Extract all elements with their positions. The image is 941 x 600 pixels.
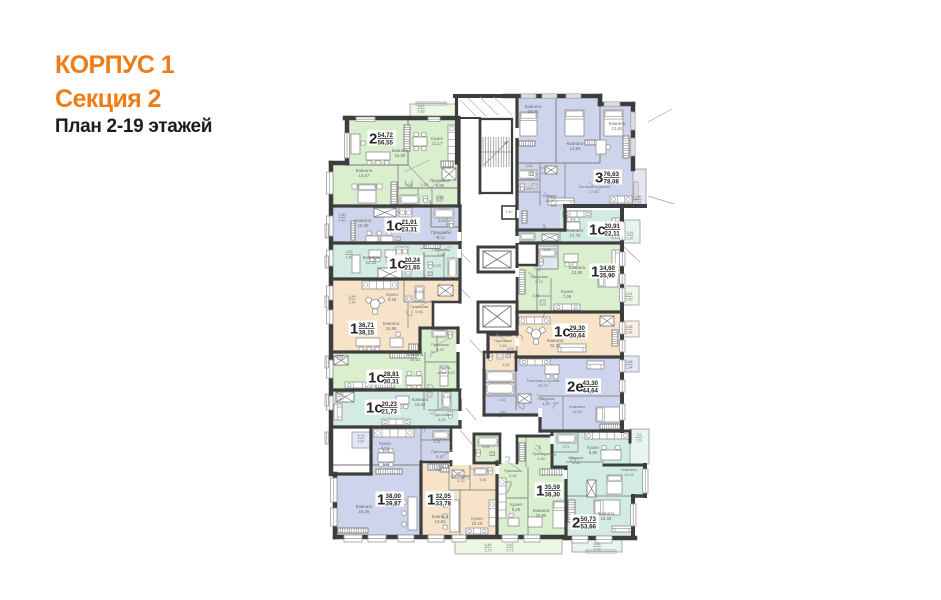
svg-text:44,64: 44,64 xyxy=(583,388,599,395)
svg-text:50,73: 50,73 xyxy=(581,516,597,523)
svg-text:13,95: 13,95 xyxy=(572,270,583,275)
svg-text:76,63: 76,63 xyxy=(604,171,620,178)
svg-text:3,61: 3,61 xyxy=(482,445,489,449)
svg-text:21,73: 21,73 xyxy=(382,409,398,416)
svg-text:Прихожая: Прихожая xyxy=(532,452,550,456)
svg-text:15,95: 15,95 xyxy=(536,513,547,518)
svg-text:2: 2 xyxy=(369,131,377,148)
svg-text:17,70: 17,70 xyxy=(570,233,581,238)
svg-text:3,74: 3,74 xyxy=(358,434,365,438)
svg-text:3: 3 xyxy=(595,170,603,187)
svg-text:8,95: 8,95 xyxy=(589,450,598,455)
svg-text:1,40: 1,40 xyxy=(346,256,353,260)
svg-text:38,15: 38,15 xyxy=(359,330,375,337)
svg-text:1,45: 1,45 xyxy=(635,201,642,205)
svg-text:20,23: 20,23 xyxy=(382,401,398,408)
svg-text:15,50: 15,50 xyxy=(358,223,369,228)
svg-text:2,6: 2,6 xyxy=(637,433,642,437)
svg-text:Прихожая: Прихожая xyxy=(431,450,449,454)
svg-text:4,30: 4,30 xyxy=(436,348,443,352)
svg-text:7,69: 7,69 xyxy=(563,294,572,299)
svg-text:3,81: 3,81 xyxy=(479,478,486,482)
svg-text:2е: 2е xyxy=(567,379,584,396)
svg-text:21,91: 21,91 xyxy=(402,219,418,226)
svg-text:15,68: 15,68 xyxy=(601,516,612,521)
svg-text:Прихожая: Прихожая xyxy=(537,397,554,401)
svg-text:5,77: 5,77 xyxy=(436,455,443,459)
svg-text:12,53: 12,53 xyxy=(572,409,582,414)
svg-text:1,83: 1,83 xyxy=(418,110,425,114)
svg-text:3,67: 3,67 xyxy=(418,104,425,108)
svg-text:1,34: 1,34 xyxy=(626,331,633,335)
svg-text:2,82: 2,82 xyxy=(499,344,506,348)
svg-text:9,54: 9,54 xyxy=(381,446,390,451)
svg-text:1,44: 1,44 xyxy=(349,301,356,305)
svg-text:1,51: 1,51 xyxy=(550,453,557,457)
svg-text:14,50: 14,50 xyxy=(570,146,581,151)
svg-text:30,31: 30,31 xyxy=(384,379,400,386)
svg-text:5,63: 5,63 xyxy=(415,290,422,294)
svg-text:1,52: 1,52 xyxy=(420,183,427,187)
svg-text:1,20: 1,20 xyxy=(627,237,634,241)
svg-text:3,00: 3,00 xyxy=(337,351,344,355)
svg-text:4,32: 4,32 xyxy=(499,398,506,402)
svg-text:4,33: 4,33 xyxy=(503,363,510,367)
svg-text:15,62: 15,62 xyxy=(415,402,426,407)
svg-text:2,45: 2,45 xyxy=(627,231,634,235)
svg-text:6,63: 6,63 xyxy=(572,461,579,465)
svg-text:1с: 1с xyxy=(386,218,403,235)
svg-text:10,19: 10,19 xyxy=(472,521,483,526)
svg-text:9,25: 9,25 xyxy=(512,507,521,512)
svg-text:1с: 1с xyxy=(554,324,571,341)
svg-text:6,85: 6,85 xyxy=(436,183,445,188)
svg-text:4,17: 4,17 xyxy=(437,328,444,332)
svg-text:ниша 4,32: ниша 4,32 xyxy=(437,371,454,375)
svg-text:1: 1 xyxy=(377,492,385,509)
svg-text:33,78: 33,78 xyxy=(436,501,452,508)
svg-text:29,30: 29,30 xyxy=(570,325,586,332)
svg-text:34,60: 34,60 xyxy=(600,265,616,272)
svg-text:38,30: 38,30 xyxy=(545,492,561,499)
svg-text:2,80: 2,80 xyxy=(635,195,642,199)
svg-text:35,59: 35,59 xyxy=(545,484,561,491)
svg-text:5,53: 5,53 xyxy=(433,264,440,268)
svg-text:5,42: 5,42 xyxy=(507,543,514,547)
svg-text:5,46: 5,46 xyxy=(594,542,601,546)
svg-text:30,64: 30,64 xyxy=(570,333,586,340)
svg-text:Прихожая: Прихожая xyxy=(530,275,548,279)
svg-text:3,94: 3,94 xyxy=(537,457,544,461)
svg-text:1,50: 1,50 xyxy=(626,298,633,302)
svg-text:2,89: 2,89 xyxy=(349,295,356,299)
svg-text:1: 1 xyxy=(427,492,435,509)
svg-text:4,45: 4,45 xyxy=(542,402,549,406)
svg-text:6,80: 6,80 xyxy=(509,474,516,478)
svg-text:11,53: 11,53 xyxy=(624,472,633,477)
svg-text:1с: 1с xyxy=(389,256,406,273)
svg-text:20,24: 20,24 xyxy=(405,257,421,264)
svg-text:Коридор: Коридор xyxy=(569,456,584,460)
svg-text:1с: 1с xyxy=(589,222,606,239)
svg-text:2,68: 2,68 xyxy=(626,360,633,364)
svg-text:20,91: 20,91 xyxy=(605,223,621,230)
svg-text:56,55: 56,55 xyxy=(378,140,394,147)
svg-text:78,08: 78,08 xyxy=(604,179,620,186)
svg-text:14,12: 14,12 xyxy=(366,260,377,265)
svg-text:1,40: 1,40 xyxy=(506,210,513,214)
svg-text:18,48: 18,48 xyxy=(359,509,370,514)
svg-text:5,13: 5,13 xyxy=(535,280,542,284)
svg-text:43,30: 43,30 xyxy=(583,380,599,387)
svg-text:54,72: 54,72 xyxy=(378,132,394,139)
svg-text:1,20: 1,20 xyxy=(636,439,643,443)
svg-text:3,53: 3,53 xyxy=(526,164,533,168)
svg-text:2,61: 2,61 xyxy=(626,292,633,296)
svg-text:23,31: 23,31 xyxy=(402,227,418,234)
svg-text:17,60: 17,60 xyxy=(589,190,598,194)
svg-text:16,88: 16,88 xyxy=(386,326,397,331)
svg-text:4,22: 4,22 xyxy=(457,479,464,483)
svg-text:22,15: 22,15 xyxy=(550,343,561,348)
svg-text:2,83: 2,83 xyxy=(346,250,353,254)
svg-text:11,17: 11,17 xyxy=(432,141,443,146)
svg-text:5,21: 5,21 xyxy=(438,418,445,422)
svg-text:Прихожая: Прихожая xyxy=(452,474,470,478)
svg-text:2,68: 2,68 xyxy=(626,325,633,329)
svg-text:5,53: 5,53 xyxy=(405,183,412,187)
svg-text:1,73: 1,73 xyxy=(594,548,601,552)
svg-text:Кухня-: Кухня- xyxy=(440,366,452,370)
svg-text:15,70: 15,70 xyxy=(528,109,539,114)
svg-text:36,71: 36,71 xyxy=(359,322,375,329)
svg-text:1,34: 1,34 xyxy=(626,366,633,370)
svg-text:Прихожая: Прихожая xyxy=(504,469,522,473)
svg-text:5,21: 5,21 xyxy=(544,248,551,252)
svg-text:1с: 1с xyxy=(368,370,385,387)
svg-text:35,90: 35,90 xyxy=(600,273,616,280)
svg-text:1,73: 1,73 xyxy=(485,549,492,553)
svg-text:21,65: 21,65 xyxy=(405,265,421,272)
svg-text:38,00: 38,00 xyxy=(386,493,402,500)
svg-text:2,71: 2,71 xyxy=(563,445,570,449)
svg-text:1,80: 1,80 xyxy=(337,398,344,402)
svg-text:28,81: 28,81 xyxy=(384,371,400,378)
svg-text:10,25: 10,25 xyxy=(545,199,554,203)
svg-text:1с: 1с xyxy=(366,400,383,417)
svg-text:Прихожая: Прихожая xyxy=(431,343,449,347)
svg-text:5,65: 5,65 xyxy=(415,309,423,314)
svg-text:5,21: 5,21 xyxy=(437,235,446,240)
svg-text:13,83: 13,83 xyxy=(435,519,446,524)
svg-text:2: 2 xyxy=(572,515,580,532)
svg-text:2,59: 2,59 xyxy=(437,252,445,257)
svg-text:1,87: 1,87 xyxy=(358,440,365,444)
svg-text:15,80: 15,80 xyxy=(395,153,406,158)
svg-text:1,62: 1,62 xyxy=(436,196,443,200)
svg-text:9,28: 9,28 xyxy=(388,297,397,302)
svg-text:14,57: 14,57 xyxy=(359,173,370,178)
svg-text:Прихожая: Прихожая xyxy=(433,413,451,417)
svg-text:1,40: 1,40 xyxy=(339,219,346,223)
svg-text:5,85: 5,85 xyxy=(533,294,540,298)
svg-text:53,66: 53,66 xyxy=(581,524,597,531)
svg-text:3,40: 3,40 xyxy=(438,219,445,223)
svg-text:1,75: 1,75 xyxy=(524,187,531,191)
svg-text:1: 1 xyxy=(591,264,599,281)
svg-text:Прихожая: Прихожая xyxy=(494,339,512,343)
svg-text:20,72: 20,72 xyxy=(538,383,548,388)
svg-text:39,87: 39,87 xyxy=(386,501,402,508)
svg-text:13,91: 13,91 xyxy=(612,126,623,131)
svg-text:2,71: 2,71 xyxy=(507,549,514,553)
svg-text:3,00: 3,00 xyxy=(337,392,344,396)
svg-text:32,05: 32,05 xyxy=(436,493,452,500)
svg-text:16,02: 16,02 xyxy=(410,357,421,362)
svg-text:2,80: 2,80 xyxy=(339,213,346,217)
svg-text:5,46: 5,46 xyxy=(485,543,492,547)
svg-text:1: 1 xyxy=(536,483,544,500)
svg-text:4,21: 4,21 xyxy=(433,440,440,444)
svg-text:Коридор: Коридор xyxy=(543,194,558,198)
svg-text:3,40: 3,40 xyxy=(443,395,450,399)
svg-text:1,50: 1,50 xyxy=(337,357,344,361)
svg-text:1: 1 xyxy=(350,321,358,338)
svg-text:22,11: 22,11 xyxy=(605,231,621,238)
